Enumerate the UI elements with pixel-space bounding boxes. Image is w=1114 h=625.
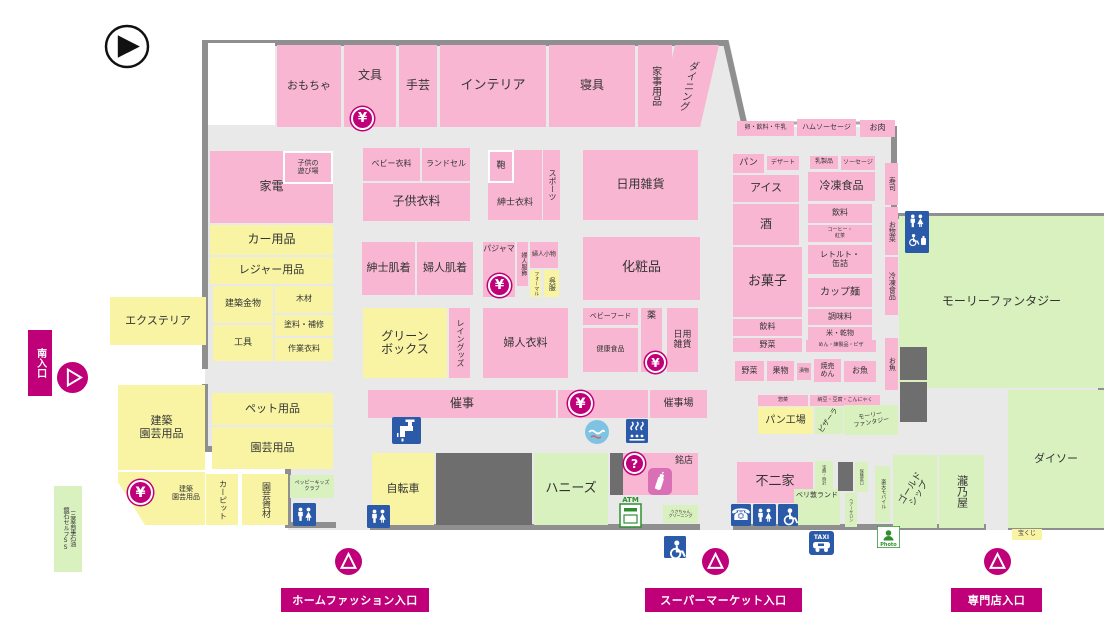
dept-construction-garden: 建築 園芸用品	[118, 385, 205, 470]
dept-souzai: 惣菜	[758, 395, 808, 406]
bags-label: 鞄	[496, 161, 505, 171]
specialty-store-entrance: 専門店入口	[951, 588, 1042, 612]
egg-drink-milk-label: 卵・飲料・牛乳	[744, 125, 786, 132]
randoseru-label: ランドセル	[426, 160, 466, 169]
gold-ship-label: ゴールド シップ	[897, 471, 933, 512]
dept-garden-goods: 園芸用品	[212, 427, 333, 469]
dept-ham-sausage: ハムソーセージ	[797, 119, 856, 136]
svg-text:ATM: ATM	[622, 496, 639, 504]
dept-takarakuji: 宝くじ	[1012, 529, 1042, 540]
takinoya-label: 瀧乃屋	[955, 475, 967, 508]
sweets-label: お菓子	[748, 275, 787, 290]
restroom-icon-3	[753, 504, 776, 526]
home-fashion-entrance-label: ホームファッション入口	[292, 592, 418, 608]
dept-womens-underwear: 婦人肌着	[417, 242, 473, 295]
restroom-icon-2	[367, 505, 390, 528]
dept-shumai-noodles: 焼売 めん	[814, 359, 841, 382]
ice-cream-label: アイス	[750, 182, 782, 194]
dining-label: ダイニング	[676, 61, 699, 111]
dept-mens-underwear: 紳士肌着	[362, 242, 415, 295]
womens-small-goods-label: 婦人小物	[532, 252, 556, 259]
usachan-cleaning-label: うさちゃん クリーニング	[669, 510, 693, 519]
household-goods-label: 家事用品	[649, 66, 660, 106]
shumai-noodles-label: 焼売 めん	[821, 363, 835, 379]
dept-rice-dry-goods: 米・乾物	[808, 327, 872, 340]
construction-garden-label: 建築 園芸用品	[140, 415, 184, 440]
lumber-label: 木材	[296, 295, 312, 304]
dept-bags: 鞄	[488, 150, 514, 183]
car-pit-label: カーピット	[218, 480, 227, 520]
dept-green-box: グリーン ボックス	[363, 308, 447, 378]
south-entrance-tab-label: 南入口	[34, 348, 45, 378]
dept-south-entrance-tab: 南入口	[28, 330, 52, 396]
dept-mitsubishi-ss: 三菱商事石油 鏡石セルフSS	[54, 486, 82, 572]
dept-health-food: 健康食品	[583, 328, 638, 372]
dept-beverage-left: 飲料	[733, 319, 802, 336]
rakuten-mobile-label: 楽天モバイル	[880, 479, 886, 509]
frozen-food-label: 冷凍食品	[820, 180, 864, 192]
dept-vegetables: 野菜	[735, 361, 764, 381]
fish-label: お魚	[852, 367, 868, 376]
stationery-label: 文具	[358, 69, 382, 82]
bread-label: パン	[739, 158, 757, 168]
molly-fantasy-label: モーリーファンタジー	[942, 295, 1061, 308]
health-food-label: 健康食品	[597, 346, 625, 354]
peppy-kids-club-label: ペッピーキッズ クラブ	[294, 481, 329, 492]
dept-peppy-kids-club: ペッピーキッズ クラブ	[290, 475, 334, 498]
beverage-right-label: 飲料	[832, 209, 848, 218]
dept-interior: インテリア	[440, 45, 546, 127]
pickles-label: 漬物	[799, 369, 809, 375]
dept-gold-ship: ゴールド シップ	[893, 455, 937, 528]
daiso-label: ダイソー	[1034, 453, 1078, 465]
dept-fish-strip: お魚	[885, 338, 898, 390]
dept-exterior: エクステリア	[110, 297, 206, 345]
dept-daily-goods-2: 日用 雑貨	[667, 308, 698, 372]
bread-factory-label: パン工場	[765, 415, 806, 426]
baby-clothing-label: ベビー衣料	[372, 160, 412, 169]
souzai-strip-label: お惣菜	[888, 221, 896, 242]
formal-label: フォーマル	[533, 271, 539, 296]
kids-playground-label: 子供の 遊び場	[298, 160, 319, 176]
dept-rakuten-mobile: 楽天モバイル	[875, 466, 890, 522]
water-fountain-icon	[392, 417, 421, 444]
exterior-label: エクステリア	[125, 315, 191, 327]
dept-daily-goods: 日用雑貨	[583, 150, 698, 220]
leisure-goods-label: レジャー用品	[239, 264, 304, 276]
checkout-yen-icon-3: ¥	[645, 352, 666, 373]
dept-womens-clothing: 婦人衣料	[483, 308, 568, 378]
compass-icon	[104, 24, 150, 69]
dept-work-clothing: 作業衣料	[275, 338, 333, 361]
construction-hardware-label: 建築金物	[225, 299, 261, 309]
checkout-yen-icon-4: ¥	[568, 391, 593, 416]
photo-icon: Photo	[877, 526, 900, 548]
dept-daiso: ダイソー	[1008, 390, 1104, 528]
baby-room-icon	[648, 468, 672, 495]
dept-frozen-food: 冷凍食品	[808, 172, 875, 201]
retort-canned-label: レトルト・ 缶詰	[820, 251, 860, 269]
fish-strip-label: お魚	[888, 357, 896, 371]
dept-rain-goods: レイングッズ	[449, 308, 470, 378]
dept-berry-land: ベリ敦ランド	[794, 489, 840, 525]
dept-retort-canned: レトルト・ 缶詰	[808, 245, 872, 274]
construction-garden-small-label: 建築 園芸用品	[172, 486, 200, 502]
dept-coffee-tea: コーヒー・ 紅茶	[808, 225, 872, 242]
dept-event-space: 催事	[368, 390, 556, 418]
cup-noodles-label: カップ麺	[820, 287, 860, 298]
home-electronics-label: 家電	[259, 180, 283, 193]
dept-fruits: 果物	[767, 361, 794, 381]
dept-molly-fantasy-small: モーリー ファンタジー	[844, 405, 898, 435]
dept-frozen-strip: 冷凍食品	[885, 257, 898, 315]
dairy-label: 乳製品	[815, 159, 833, 166]
beverage-left-label: 飲料	[760, 323, 776, 332]
dept-insurance-counter: 保険窓口	[855, 462, 868, 492]
dept-hair-salon: ヘアーサロン	[845, 493, 857, 527]
dessert-label: デザート	[771, 160, 795, 167]
toys-label: おもちゃ	[287, 80, 331, 92]
dept-seasoning: 調味料	[808, 309, 872, 325]
wheelchair-icon-2	[664, 536, 686, 558]
svg-text:Photo: Photo	[880, 542, 897, 548]
dept-sausage: ソーセージ	[841, 156, 875, 170]
dept-dessert: デザート	[767, 156, 799, 170]
entrance-marker-icon-3	[983, 547, 1012, 576]
svg-text:TAXI: TAXI	[814, 534, 829, 541]
dept-lumber: 木材	[275, 286, 333, 313]
dept-paint-repair: 塗料・補修	[275, 315, 333, 336]
home-fashion-entrance: ホームファッション入口	[281, 588, 429, 612]
fujiya-label: 不二家	[755, 475, 794, 490]
event-hall-label: 催事場	[664, 398, 694, 409]
dept-handicraft: 手芸	[399, 45, 437, 127]
rice-dry-goods-label: 米・乾物	[826, 330, 854, 338]
dept-sweets: お菓子	[733, 247, 802, 317]
checkout-yen-icon-5: ¥	[128, 480, 153, 505]
round-badge-icon	[584, 419, 610, 445]
dept-gray-block-c	[838, 462, 853, 491]
medicine-label: 薬	[647, 311, 656, 321]
daily-goods-2-label: 日用 雑貨	[673, 330, 691, 350]
womens-dress-goods-label: 婦人服飾	[519, 252, 526, 276]
baby-food-label: ベビーフード	[590, 313, 632, 321]
wheelchair-icon-1	[778, 504, 798, 526]
dept-randoseru: ランドセル	[422, 148, 470, 181]
hot-food-icon	[626, 419, 648, 443]
dept-kids-playground: 子供の 遊び場	[283, 151, 333, 184]
bedding-label: 寝具	[580, 79, 604, 92]
garden-materials-label: 園芸資材	[260, 482, 270, 518]
dept-kids-clothing: 子供衣料	[363, 183, 470, 221]
ham-sausage-label: ハムソーセージ	[802, 124, 851, 132]
paint-repair-label: 塗料・補修	[284, 321, 324, 330]
vegetables-label: 野菜	[742, 367, 758, 376]
gofuku-label: 呉服	[548, 277, 556, 291]
dept-beverage-right: 飲料	[808, 204, 872, 223]
dept-leisure-goods: レジャー用品	[210, 257, 333, 284]
south-entrance-arrow-icon	[56, 361, 89, 394]
sushi-strip-label: 寿司	[888, 177, 896, 191]
pizza-la-label: ピザーラ	[818, 407, 840, 434]
kids-clothing-label: 子供衣料	[392, 195, 440, 208]
dept-gray-block-a	[900, 347, 927, 380]
fruits-label: 果物	[773, 367, 789, 376]
daily-goods-label: 日用雑貨	[616, 178, 664, 191]
takarakuji-label: 宝くじ	[1018, 531, 1036, 538]
dept-cup-noodles: カップ麺	[808, 278, 872, 307]
dept-molly-fantasy: モーリーファンタジー	[899, 216, 1104, 388]
meiten-label: 銘店	[675, 456, 693, 466]
tools-label: 工具	[234, 338, 252, 348]
supermarket-entrance: スーパーマーケット入口	[645, 588, 802, 612]
work-clothing-label: 作業衣料	[288, 345, 320, 354]
mitsubishi-ss-label: 三菱商事石油 鏡石セルフSS	[61, 507, 74, 551]
dept-takinoya: 瀧乃屋	[939, 455, 984, 528]
pet-goods-label: ペット用品	[245, 403, 300, 415]
taxi-icon: TAXI	[809, 531, 834, 555]
dept-bread-factory: パン工場	[758, 407, 813, 434]
dept-car-goods: カー用品	[210, 225, 333, 255]
specialty-store-entrance-label: 専門店入口	[968, 592, 1026, 608]
handicraft-label: 手芸	[406, 79, 430, 92]
honeys-label: ハニーズ	[545, 482, 596, 497]
phone-icon: ☎	[731, 504, 751, 526]
dept-ice-cream: アイス	[733, 175, 799, 202]
souzai-label: 惣菜	[778, 398, 788, 404]
restroom-tall-icon	[905, 211, 929, 253]
dept-usachan-cleaning: うさちゃん クリーニング	[663, 505, 698, 523]
dept-honeys: ハニーズ	[534, 453, 608, 525]
dept-car-pit: カーピット	[206, 474, 238, 525]
dept-baby-food: ベビーフード	[583, 308, 638, 325]
dept-fish: お魚	[844, 361, 876, 382]
hair-salon-label: ヘアーサロン	[849, 498, 853, 522]
dept-bedding: 寝具	[549, 45, 635, 127]
green-box-label: グリーン ボックス	[381, 330, 429, 357]
atm-icon: ATM	[616, 495, 645, 528]
dept-gray-block-big	[436, 453, 532, 525]
dept-construction-hardware: 建築金物	[213, 286, 273, 323]
dept-gray-block-small	[610, 453, 623, 495]
dept-egg-drink-milk: 卵・飲料・牛乳	[737, 121, 794, 136]
dept-souzai-strip: お惣菜	[885, 207, 898, 255]
dept-formal: フォーマル	[530, 270, 541, 297]
car-goods-label: カー用品	[247, 233, 295, 246]
dept-noodle-fishcake-pizza: めん・練製品・ピザ	[806, 340, 876, 352]
insurance-counter-label: 保険窓口	[859, 469, 863, 485]
meat-label: お肉	[870, 124, 886, 133]
vegetables-strip-label: 野菜	[760, 341, 776, 350]
floor-plan-canvas: おもちゃ文具手芸インテリア寝具家事用品ダイニングベビー衣料ランドセル子供衣料紳士…	[0, 0, 1114, 625]
dept-pet-goods: ペット用品	[212, 393, 333, 425]
dept-liquor: 酒	[733, 204, 799, 245]
molly-fantasy-small-label: モーリー ファンタジー	[852, 410, 890, 429]
seasoning-label: 調味料	[828, 313, 852, 322]
womens-underwear-label: 婦人肌着	[423, 262, 467, 274]
mens-clothing-label: 紳士衣料	[497, 198, 533, 208]
cosmetics-label: 化粧品	[622, 261, 661, 276]
dept-event-hall: 催事場	[650, 390, 707, 418]
noodle-fishcake-pizza-label: めん・練製品・ピザ	[818, 343, 863, 349]
dept-gray-block-b	[900, 382, 927, 422]
liquor-label: 酒	[760, 218, 772, 231]
supermarket-entrance-label: スーパーマーケット入口	[660, 592, 786, 608]
dept-dairy: 乳製品	[810, 156, 838, 169]
dept-baby-clothing: ベビー衣料	[363, 148, 420, 181]
coffee-tea-label: コーヒー・ 紅茶	[827, 228, 852, 239]
dept-cosmetics: 化粧品	[583, 237, 700, 300]
dept-pizza-la: ピザーラ	[815, 407, 843, 434]
bicycle-label: 自転車	[387, 483, 420, 495]
entrance-marker-icon-2	[701, 547, 730, 576]
sausage-label: ソーセージ	[843, 160, 873, 167]
interior-label: インテリア	[460, 79, 525, 94]
dept-garden-materials: 園芸資材	[242, 474, 288, 525]
pajamas-label: パジャマ	[483, 245, 515, 254]
dept-pickles: 漬物	[797, 363, 811, 380]
berry-land-label: ベリ敦ランド	[796, 492, 838, 500]
rain-goods-label: レイングッズ	[455, 319, 464, 367]
entrance-marker-icon-1	[334, 547, 363, 576]
dept-womens-small-goods: 婦人小物	[530, 242, 558, 268]
dept-sushi-strip: 寿司	[885, 163, 898, 205]
dept-toys: おもちゃ	[277, 45, 341, 127]
dept-meat: お肉	[860, 120, 895, 137]
restroom-icon-1	[293, 503, 316, 526]
dept-sports: スポーツ	[543, 150, 560, 220]
checkout-yen-icon-2: ¥	[488, 274, 511, 297]
dept-jewelry-watch: 宝飾・時計	[815, 461, 833, 489]
dept-vegetables-strip: 野菜	[733, 338, 802, 352]
dept-bread: パン	[733, 154, 764, 173]
event-space-label: 催事	[450, 397, 474, 410]
dept-womens-dress-goods: 婦人服飾	[517, 242, 528, 286]
frozen-strip-label: 冷凍食品	[888, 272, 896, 300]
dept-white-notch	[208, 43, 275, 125]
sports-label: スポーツ	[547, 169, 556, 201]
jewelry-watch-label: 宝飾・時計	[822, 465, 826, 485]
natto-tofu-konnyaku-label: 納豆・豆腐・こんにゃく	[817, 398, 872, 404]
checkout-yen-icon-1: ¥	[351, 107, 374, 130]
svg-text:☎: ☎	[731, 505, 751, 524]
dept-tools: 工具	[213, 325, 273, 361]
womens-clothing-label: 婦人衣料	[504, 337, 548, 349]
dept-gofuku: 呉服	[544, 270, 559, 297]
mens-underwear-label: 紳士肌着	[367, 262, 411, 274]
information-icon: ?	[624, 453, 645, 474]
garden-goods-label: 園芸用品	[251, 442, 295, 454]
